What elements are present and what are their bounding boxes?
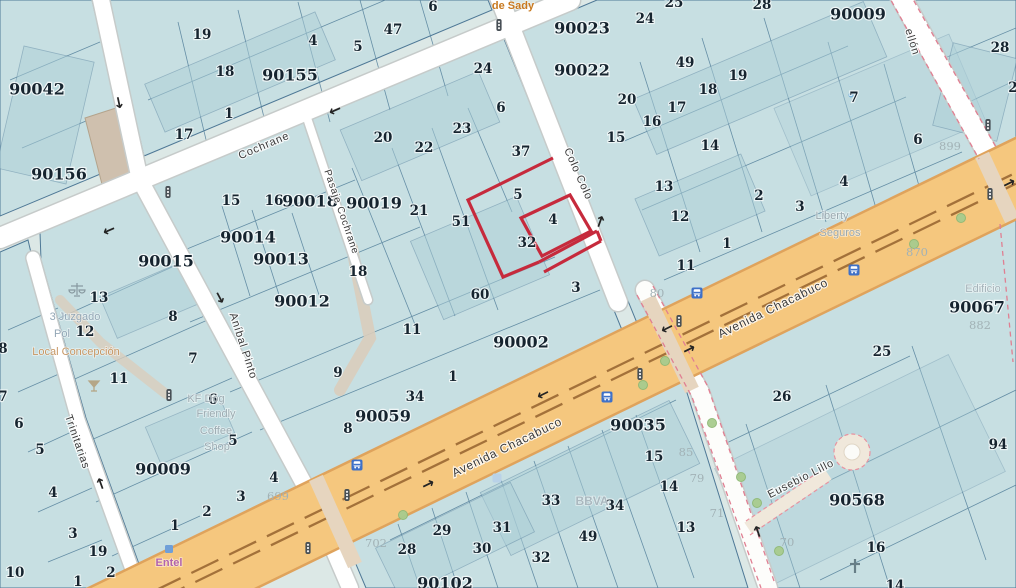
parcel-number-label: 32 (518, 235, 537, 251)
parcel-number-label: 28 (991, 40, 1010, 56)
traffic-signal-icon (165, 186, 170, 198)
house-number-label: 899 (939, 139, 961, 153)
block-code-label: 90023 (554, 19, 610, 38)
parcel-number-label: 4 (48, 485, 57, 501)
parcel-number-label: 5 (35, 442, 44, 458)
house-number-label: 85 (679, 445, 694, 459)
poi-label: de Sady (492, 0, 535, 12)
parcel-number-label: 11 (403, 322, 422, 338)
parcel-number-label: 94 (989, 437, 1008, 453)
parcel-number-label: 14 (886, 578, 905, 588)
parcel-number-label: 31 (493, 520, 512, 536)
parcel-number-label: 1 (224, 106, 233, 122)
parcel-number-label: 1 (170, 518, 179, 534)
parcel-number-label: 15 (645, 449, 664, 465)
parcel-number-label: 15 (222, 193, 241, 209)
house-number-label: 80 (650, 286, 665, 300)
poi-label: 3 Juzgado (50, 311, 101, 323)
block-code-label: 90012 (274, 292, 330, 311)
poi-label: BBVA (575, 494, 608, 508)
parcel-number-label: 11 (110, 371, 129, 387)
parcel-number-label: 6 (428, 0, 437, 15)
block-code-label: 90156 (31, 165, 87, 184)
tree-icon (708, 419, 717, 428)
parcel-number-label: 4 (839, 174, 848, 190)
parcel-number-label: 2 (106, 565, 115, 581)
parcel-number-label: 37 (512, 144, 531, 160)
map-canvas[interactable]: 9004290156901559001590014900139001290018… (0, 0, 1016, 588)
tree-icon (753, 499, 762, 508)
parcel-number-label: 8 (343, 421, 352, 437)
parcel-number-label: 3 (571, 280, 580, 296)
parcel-number-label: 24 (636, 11, 655, 27)
block-code-label: 90009 (830, 5, 886, 24)
house-number-label: 702 (365, 536, 387, 550)
parcel-number-label: 12 (671, 209, 690, 225)
parcel-number-label: 14 (660, 479, 679, 495)
block-code-label: 90102 (417, 574, 473, 588)
parcel-number-label: 3 (236, 489, 245, 505)
parcel-number-label: 2 (1008, 80, 1016, 96)
poi-label: Entel (156, 557, 183, 569)
parcel-number-label: 10 (6, 565, 25, 581)
parcel-number-label: 7 (0, 389, 8, 405)
parcel-number-label: 9 (333, 365, 342, 381)
turning-circle-island (844, 444, 860, 460)
parcel-number-label: 20 (374, 130, 393, 146)
parcel-number-label: 6 (913, 132, 922, 148)
osm-map: 9004290156901559001590014900139001290018… (0, 0, 1016, 588)
block-code-label: 90035 (610, 416, 666, 435)
traffic-signal-icon (166, 389, 171, 401)
bus-stop-icon (352, 460, 363, 471)
parcel-number-label: 19 (729, 68, 748, 84)
parcel-number-label: 2 (202, 504, 211, 520)
poi-label: Pol (54, 328, 70, 340)
parcel-number-label: 25 (665, 0, 684, 11)
parcel-number-label: 6 (14, 416, 23, 432)
parcel-number-label: 15 (607, 130, 626, 146)
parcel-number-label: 49 (579, 529, 598, 545)
block-code-label: 90059 (355, 407, 411, 426)
poi-label: Edificio (965, 283, 1000, 295)
parcel-number-label: 5 (353, 39, 362, 55)
bus-stop-icon (692, 288, 703, 299)
traffic-signal-icon (637, 368, 642, 380)
parcel-number-label: 19 (193, 27, 212, 43)
tree-icon (957, 214, 966, 223)
entel-shop-icon (165, 545, 173, 553)
house-number-label: 79 (690, 471, 705, 485)
tree-icon (639, 381, 648, 390)
parcel-number-label: 28 (398, 542, 417, 558)
poi-label: Friendly (196, 408, 236, 420)
parcel-number-label: 28 (753, 0, 772, 13)
house-number-label: 699 (267, 489, 289, 503)
poi-label: Seguros (820, 227, 861, 239)
traffic-signal-icon (676, 315, 681, 327)
tree-icon (399, 511, 408, 520)
parcel-number-label: 1 (73, 574, 82, 588)
parcel-number-label: 13 (655, 179, 674, 195)
parcel-number-label: 13 (677, 520, 696, 536)
parcel-number-label: 1 (722, 236, 731, 252)
parcel-number-label: 8 (0, 341, 8, 357)
parcel-number-label: 13 (90, 290, 109, 306)
house-number-label: 882 (969, 318, 991, 332)
parcel-number-label: 14 (701, 138, 720, 154)
parcel-number-label: 3 (795, 199, 804, 215)
parcel-number-label: 16 (867, 540, 886, 556)
poi-label: Coffee (200, 425, 232, 437)
bus-stop-icon (602, 392, 613, 403)
parcel-number-label: 18 (699, 82, 718, 98)
parcel-number-label: 49 (676, 55, 695, 71)
parcel-number-label: 24 (474, 61, 493, 77)
tree-icon (737, 473, 746, 482)
block-code-label: 90022 (554, 61, 610, 80)
block-code-label: 90009 (135, 460, 191, 479)
parcel-number-label: 11 (677, 258, 696, 274)
parcel-number-label: 12 (76, 324, 95, 340)
parcel-number-label: 16 (265, 193, 284, 209)
parcel-number-label: 60 (471, 287, 490, 303)
parcel-number-label: 4 (308, 33, 317, 49)
block-code-label: 90014 (220, 228, 276, 247)
parcel-number-label: 30 (473, 541, 492, 557)
block-code-label: 90042 (9, 80, 65, 99)
house-number-label: 70 (780, 535, 795, 549)
traffic-signal-icon (496, 19, 501, 31)
parcel-number-label: 17 (175, 127, 194, 143)
block-code-label: 90067 (949, 298, 1005, 317)
parcel-number-label: 18 (216, 64, 235, 80)
parcel-number-label: 17 (668, 100, 687, 116)
traffic-signal-icon (305, 542, 310, 554)
poi-label: Shop (204, 441, 230, 453)
parcel-number-label: 47 (384, 22, 403, 38)
poi-label: Local Concepción (32, 346, 119, 358)
parcel-number-label: 1 (448, 369, 457, 385)
parcel-number-label: 21 (410, 203, 429, 219)
parcel-number-label: 8 (168, 309, 177, 325)
traffic-signal-icon (987, 188, 992, 200)
shop-icon (493, 474, 502, 483)
parcel-number-label: 19 (89, 544, 108, 560)
parcel-number-label: 3 (68, 526, 77, 542)
parcel-number-label: 34 (406, 389, 425, 405)
house-number-label: 870 (906, 245, 928, 259)
parcel-number-label: 20 (618, 92, 637, 108)
parcel-number-label: 6 (496, 100, 505, 116)
poi-label: KF Dog (187, 393, 224, 405)
parcel-number-label: 29 (433, 523, 452, 539)
traffic-signal-icon (985, 119, 990, 131)
parcel-number-label: 22 (415, 140, 434, 156)
parcel-number-label: 26 (773, 389, 792, 405)
block-code-label: 90019 (346, 194, 402, 213)
parcel-number-label: 7 (188, 351, 197, 367)
traffic-signal-icon (344, 489, 349, 501)
parcel-number-label: 32 (532, 550, 551, 566)
parcel-number-label: 4 (269, 470, 278, 486)
tree-icon (661, 357, 670, 366)
parcel-number-label: 51 (452, 214, 471, 230)
parcel-number-label: 16 (643, 114, 662, 130)
parcel-number-label: 4 (548, 212, 557, 228)
parcel-number-label: 33 (542, 493, 561, 509)
block-code-label: 90002 (493, 333, 549, 352)
poi-label: Liberty (815, 210, 849, 222)
bus-stop-icon (849, 265, 860, 276)
parcel-number-label: 2 (754, 188, 763, 204)
block-code-label: 90013 (253, 250, 309, 269)
parcel-number-label: 23 (453, 121, 472, 137)
parcel-number-label: 25 (873, 344, 892, 360)
parcel-number-label: 18 (349, 264, 368, 280)
block-code-label: 90568 (829, 491, 885, 510)
block-code-label: 90015 (138, 252, 194, 271)
block-code-label: 90155 (262, 66, 318, 85)
parcel-number-label: 5 (513, 187, 522, 203)
house-number-label: 71 (710, 506, 725, 520)
parcel-number-label: 7 (849, 90, 858, 106)
